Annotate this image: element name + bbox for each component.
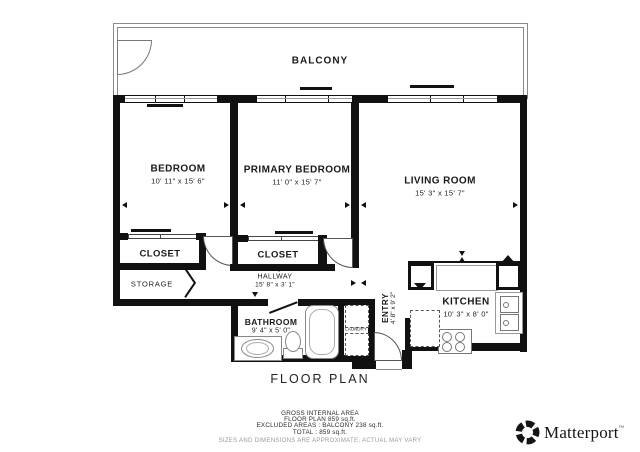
window-mullion bbox=[430, 96, 431, 102]
matterport-logo-icon bbox=[514, 419, 541, 446]
balcony-label: BALCONY bbox=[292, 56, 348, 67]
entry-dims: 4' 8" x 9' 2" bbox=[390, 292, 397, 324]
window-living bbox=[388, 95, 497, 103]
closet2-door-track bbox=[275, 231, 313, 234]
kitchen-dims: 10' 3" x 8' 0" bbox=[443, 310, 488, 319]
window-mullion bbox=[328, 96, 329, 102]
fridge-door-marker bbox=[501, 255, 515, 263]
kitchen-counter bbox=[436, 265, 498, 291]
kitchen-label: KITCHEN bbox=[442, 297, 489, 308]
living-room-dims: 15' 3" x 15' 7" bbox=[415, 189, 465, 198]
matterport-wordmark: Matterport™ bbox=[544, 423, 624, 443]
hallway-dims: 15' 8" x 3' 1" bbox=[255, 282, 295, 289]
wall-closet2 bbox=[238, 235, 248, 242]
wall-marker bbox=[513, 202, 518, 208]
primary-bedroom-label: PRIMARY BEDROOM bbox=[244, 165, 351, 176]
pantry-door-marker bbox=[414, 283, 426, 290]
opening-marker bbox=[252, 292, 258, 297]
stove-burner bbox=[442, 332, 452, 342]
dryer bbox=[345, 333, 369, 356]
sliding-door-panel bbox=[147, 104, 183, 107]
fridge bbox=[496, 263, 521, 290]
sink-oval-inner bbox=[246, 342, 269, 355]
kitchen-sink-basin bbox=[500, 314, 519, 331]
laundry-label: LAUNDRY bbox=[345, 327, 366, 332]
opening-marker bbox=[361, 280, 366, 286]
window-mullion bbox=[184, 96, 185, 102]
stove-burner bbox=[442, 342, 452, 352]
opening-marker bbox=[459, 257, 465, 262]
window-mullion bbox=[463, 96, 464, 102]
faucet-knob bbox=[503, 320, 509, 326]
living-room-label: LIVING ROOM bbox=[404, 176, 476, 187]
wall-entry-corner bbox=[352, 355, 376, 369]
floor-plan-page: BALCONY BEDROOM 10' 11" x 15' 6" PRIMARY… bbox=[0, 0, 640, 452]
stove-burner bbox=[455, 332, 465, 342]
sliding-door-panel bbox=[300, 87, 332, 90]
trademark-symbol: ™ bbox=[619, 426, 624, 431]
wall-marker bbox=[345, 202, 350, 208]
window-bedroom bbox=[125, 95, 217, 103]
entry-label-block: ENTRY 4' 8" x 9' 2" bbox=[381, 292, 397, 324]
bedroom-label: BEDROOM bbox=[150, 164, 205, 175]
closet2-label: CLOSET bbox=[258, 250, 299, 261]
wall-marker bbox=[240, 202, 245, 208]
wall-closet2-bottom bbox=[230, 264, 335, 271]
wall-closet1-bottom bbox=[113, 263, 206, 270]
wall-marker bbox=[122, 202, 127, 208]
page-title: FLOOR PLAN bbox=[270, 372, 369, 386]
matterport-logo: Matterport™ bbox=[514, 419, 624, 446]
bathroom-label: BATHROOM bbox=[245, 317, 298, 327]
closet1-sliding-door bbox=[128, 234, 198, 239]
bathroom-door-leaf bbox=[269, 301, 298, 313]
opening-marker bbox=[276, 267, 282, 272]
wall-hallway-bottom-left bbox=[113, 299, 268, 306]
faucet-knob bbox=[503, 302, 509, 308]
opening-marker bbox=[459, 251, 465, 256]
opening-marker bbox=[351, 280, 356, 286]
closet2-sliding-door bbox=[248, 236, 320, 241]
wall-left bbox=[113, 95, 120, 306]
hallway-label: HALLWAY bbox=[258, 274, 293, 281]
primary-bedroom-dims: 11' 0" x 15' 7" bbox=[272, 178, 321, 187]
wall-marker bbox=[224, 202, 229, 208]
window-primary bbox=[257, 95, 352, 103]
storage-label: STORAGE bbox=[131, 280, 173, 289]
window-mullion bbox=[155, 96, 156, 102]
wall-entry-right-corner bbox=[402, 350, 412, 369]
kitchen-sink-basin bbox=[500, 296, 519, 313]
dishwasher bbox=[410, 310, 440, 347]
entry-label: ENTRY bbox=[381, 292, 390, 324]
bedroom-dims: 10' 11" x 15' 6" bbox=[151, 177, 205, 186]
bathtub-inner bbox=[309, 309, 335, 355]
bedroom-door-arc bbox=[203, 236, 233, 266]
stove bbox=[438, 329, 472, 354]
sliding-door-panel bbox=[410, 85, 454, 88]
stove-burner bbox=[455, 342, 465, 352]
window-mullion bbox=[285, 96, 286, 102]
wall-closet1 bbox=[113, 233, 128, 240]
washer bbox=[345, 305, 369, 328]
closet1-door-track bbox=[131, 229, 171, 232]
bathroom-dims: 9' 4" x 5' 0" bbox=[252, 328, 290, 335]
entry-door-arc bbox=[374, 332, 402, 361]
wall-marker bbox=[361, 202, 366, 208]
closet1-label: CLOSET bbox=[140, 249, 181, 260]
storage-bifold-door bbox=[185, 282, 196, 298]
